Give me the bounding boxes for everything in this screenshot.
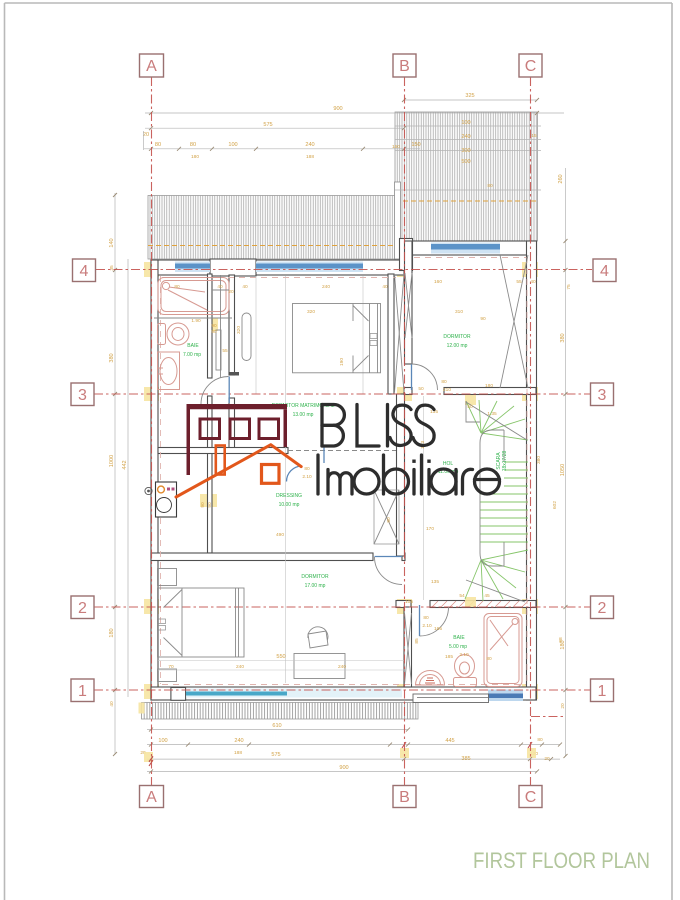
svg-text:90: 90	[211, 323, 217, 329]
svg-text:80: 80	[174, 284, 180, 290]
svg-text:C: C	[525, 789, 537, 806]
svg-text:80: 80	[486, 656, 492, 662]
svg-text:BAIE: BAIE	[453, 635, 465, 641]
svg-text:170: 170	[426, 526, 434, 532]
svg-text:80: 80	[304, 466, 310, 472]
svg-text:2.10: 2.10	[422, 623, 432, 629]
svg-text:50: 50	[467, 404, 473, 410]
svg-text:550: 550	[276, 654, 285, 660]
svg-text:18x17/28: 18x17/28	[502, 450, 508, 471]
svg-text:80: 80	[487, 183, 493, 189]
svg-text:180: 180	[109, 628, 115, 637]
svg-text:3: 3	[598, 387, 607, 404]
svg-text:A: A	[146, 789, 157, 806]
svg-text:325: 325	[465, 93, 474, 99]
svg-text:320: 320	[307, 309, 315, 315]
svg-text:3: 3	[78, 387, 87, 404]
svg-text:490: 490	[276, 532, 284, 538]
svg-text:70: 70	[168, 664, 174, 670]
svg-text:260: 260	[558, 174, 564, 183]
svg-text:54: 54	[459, 593, 465, 599]
svg-text:180: 180	[485, 383, 493, 389]
svg-text:FIRST FLOOR PLAN: FIRST FLOOR PLAN	[473, 848, 650, 873]
svg-text:380: 380	[536, 456, 542, 464]
svg-text:DORMITOR: DORMITOR	[443, 334, 471, 340]
svg-text:240: 240	[236, 664, 244, 670]
svg-text:55: 55	[222, 348, 228, 354]
svg-text:210: 210	[443, 387, 451, 393]
svg-text:15: 15	[531, 133, 537, 139]
svg-text:150: 150	[392, 144, 400, 150]
svg-text:7.00 mp: 7.00 mp	[183, 352, 201, 358]
svg-text:380: 380	[560, 333, 566, 342]
svg-text:20: 20	[560, 703, 566, 709]
svg-text:80: 80	[423, 615, 429, 621]
svg-text:80: 80	[190, 142, 196, 148]
svg-text:2: 2	[78, 600, 87, 617]
svg-text:90: 90	[211, 329, 217, 335]
svg-text:900: 900	[333, 106, 342, 112]
svg-text:2.10: 2.10	[302, 474, 312, 480]
svg-text:12.00 mp: 12.00 mp	[447, 343, 468, 349]
svg-text:80: 80	[155, 142, 161, 148]
svg-text:140: 140	[109, 238, 115, 247]
svg-text:55: 55	[516, 279, 522, 285]
svg-text:40: 40	[109, 701, 115, 707]
svg-text:2.10: 2.10	[459, 652, 469, 658]
svg-text:575: 575	[271, 752, 280, 758]
svg-text:85: 85	[414, 638, 420, 644]
svg-text:80: 80	[386, 517, 392, 523]
svg-text:5.00 mp: 5.00 mp	[449, 644, 467, 650]
svg-text:575: 575	[263, 122, 272, 128]
svg-text:160: 160	[434, 279, 442, 285]
svg-text:DORMITOR: DORMITOR	[301, 574, 329, 580]
svg-text:442: 442	[122, 460, 128, 469]
svg-text:75: 75	[566, 284, 572, 290]
svg-text:HOL: HOL	[443, 461, 454, 467]
svg-text:165: 165	[434, 626, 442, 632]
svg-text:80: 80	[441, 379, 447, 385]
svg-text:40: 40	[217, 284, 223, 290]
svg-text:20: 20	[228, 289, 234, 295]
svg-text:10.00 mp: 10.00 mp	[279, 502, 300, 508]
svg-text:100: 100	[158, 738, 167, 744]
svg-text:1050: 1050	[560, 464, 566, 476]
svg-text:150: 150	[411, 142, 420, 148]
svg-text:900: 900	[339, 765, 348, 771]
svg-text:180: 180	[191, 154, 199, 160]
svg-text:445: 445	[445, 738, 454, 744]
svg-text:4: 4	[80, 263, 89, 280]
svg-text:98: 98	[558, 637, 564, 643]
svg-text:380: 380	[109, 353, 115, 362]
svg-text:185: 185	[445, 654, 453, 660]
svg-text:300: 300	[461, 148, 470, 154]
svg-text:90: 90	[200, 502, 206, 508]
svg-text:320: 320	[236, 326, 242, 334]
svg-text:C: C	[525, 58, 537, 75]
svg-text:310: 310	[455, 309, 463, 315]
svg-text:13.00 mp: 13.00 mp	[293, 412, 314, 418]
svg-text:A: A	[146, 58, 157, 75]
svg-text:BAIE: BAIE	[187, 343, 199, 349]
svg-text:105: 105	[405, 599, 413, 605]
svg-text:188: 188	[306, 154, 314, 160]
svg-text:240: 240	[234, 738, 243, 744]
svg-text:4: 4	[600, 263, 609, 280]
svg-text:B: B	[399, 58, 410, 75]
svg-text:45: 45	[484, 593, 490, 599]
svg-text:240: 240	[305, 142, 314, 148]
svg-text:90: 90	[480, 316, 486, 322]
svg-text:17.00 mp: 17.00 mp	[305, 583, 326, 589]
svg-text:90: 90	[207, 502, 213, 508]
svg-text:1: 1	[78, 683, 87, 700]
svg-text:40: 40	[382, 284, 388, 290]
svg-text:135: 135	[431, 579, 439, 585]
svg-text:2: 2	[598, 600, 607, 617]
svg-text:1.35: 1.35	[487, 411, 497, 417]
svg-text:40: 40	[530, 279, 536, 285]
svg-text:DRESSING: DRESSING	[276, 493, 302, 499]
svg-text:1.90: 1.90	[191, 318, 201, 324]
svg-text:240: 240	[338, 664, 346, 670]
svg-text:602: 602	[552, 501, 558, 509]
svg-text:80: 80	[537, 737, 543, 743]
svg-text:1: 1	[598, 683, 607, 700]
svg-text:240: 240	[322, 284, 330, 290]
svg-text:100: 100	[461, 120, 470, 126]
svg-text:190: 190	[339, 358, 345, 366]
svg-text:385: 385	[461, 756, 470, 762]
svg-text:1000: 1000	[109, 455, 115, 467]
svg-text:240: 240	[461, 134, 470, 140]
svg-text:100: 100	[228, 142, 237, 148]
svg-text:B: B	[399, 789, 410, 806]
svg-text:40: 40	[242, 284, 248, 290]
svg-text:50: 50	[418, 386, 424, 392]
svg-text:500: 500	[461, 159, 470, 165]
svg-text:188: 188	[234, 750, 242, 756]
svg-text:610: 610	[272, 723, 281, 729]
